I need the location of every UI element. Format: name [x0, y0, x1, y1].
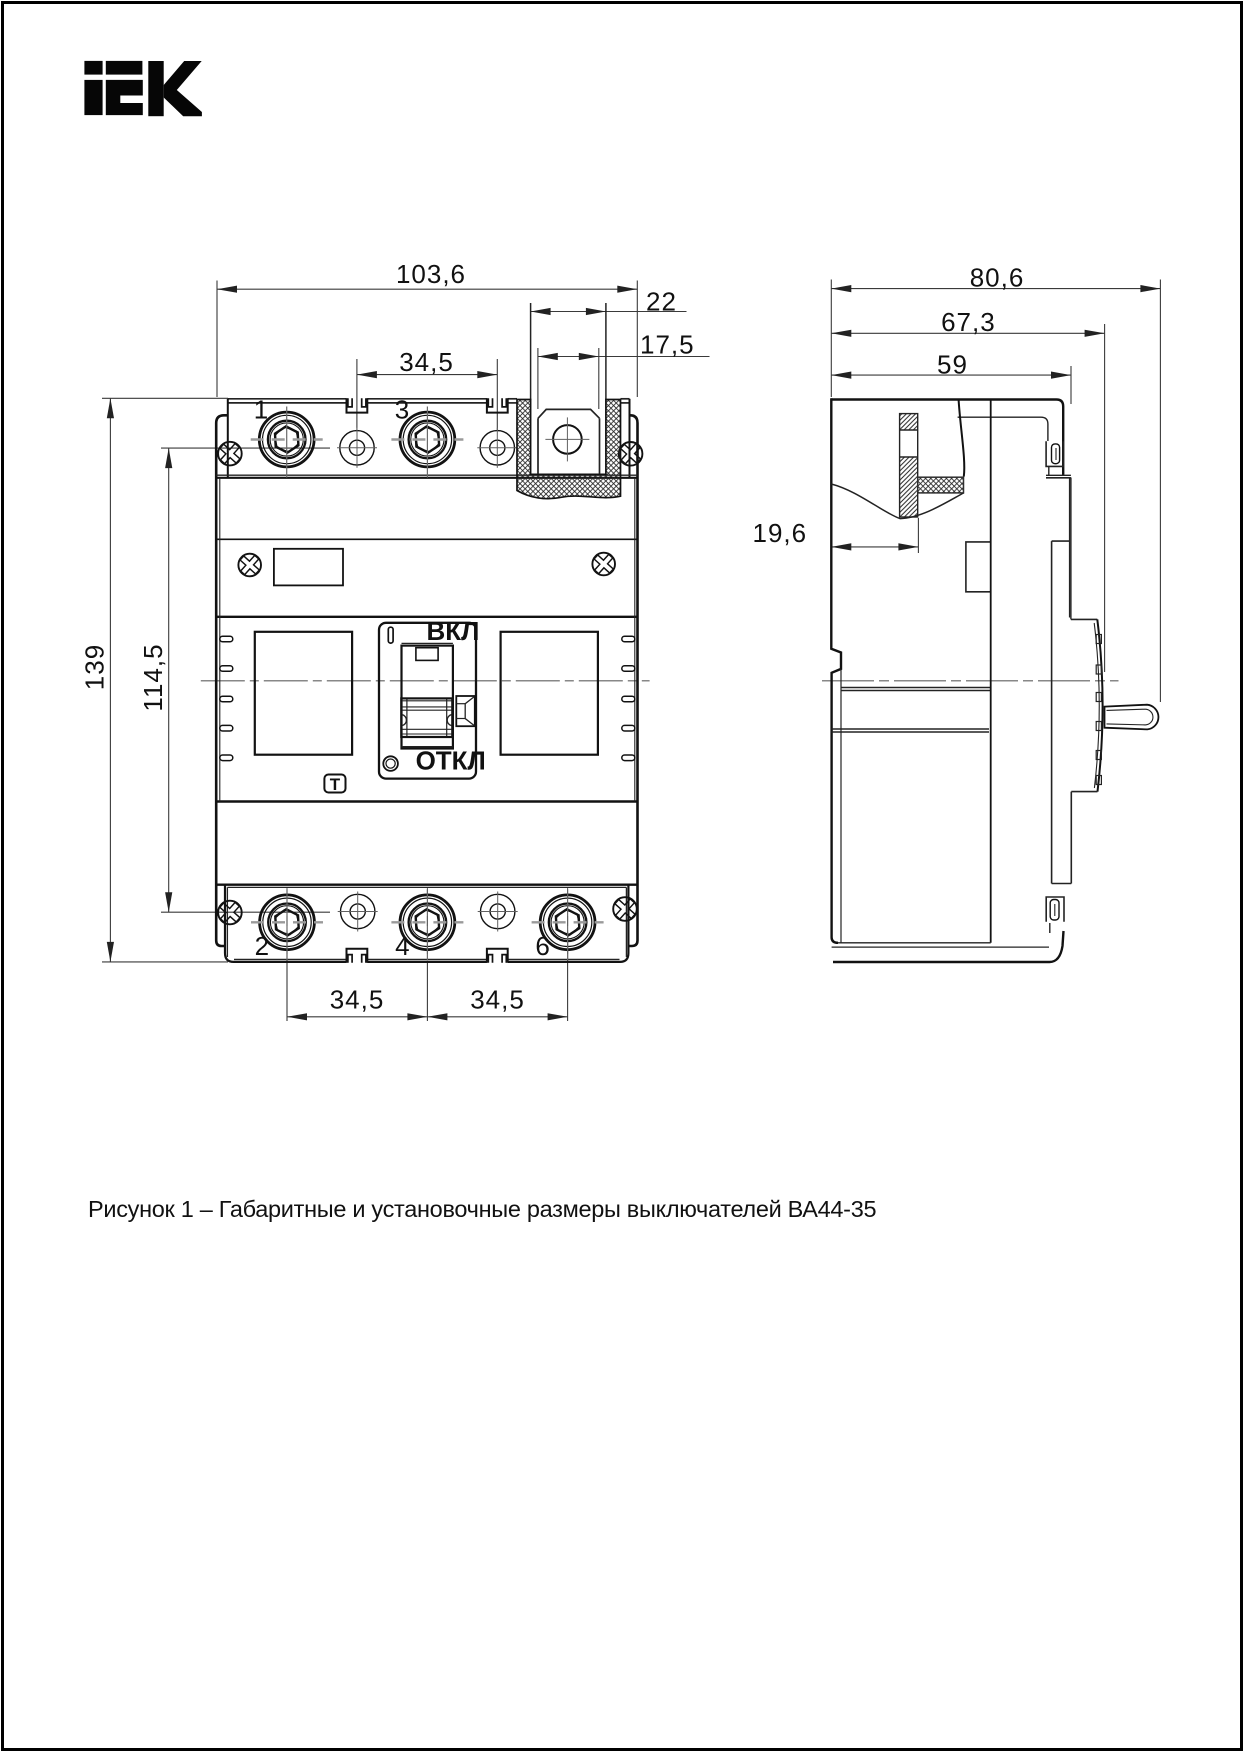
svg-text:6: 6: [535, 931, 549, 961]
svg-text:2: 2: [255, 931, 269, 961]
svg-text:ОТКЛ: ОТКЛ: [416, 745, 486, 775]
svg-text:ВКЛ: ВКЛ: [426, 616, 479, 646]
svg-text:67,3: 67,3: [941, 307, 996, 337]
svg-text:139: 139: [80, 644, 110, 690]
svg-text:103,6: 103,6: [396, 259, 466, 289]
svg-text:1: 1: [254, 395, 268, 425]
svg-text:19,6: 19,6: [752, 518, 807, 548]
svg-text:4: 4: [395, 931, 409, 961]
svg-text:22: 22: [646, 286, 677, 316]
svg-text:34,5: 34,5: [470, 985, 525, 1015]
svg-text:Рисунок 1 – Габаритные и устан: Рисунок 1 – Габаритные и установочные ра…: [88, 1196, 876, 1222]
svg-text:114,5: 114,5: [138, 643, 168, 711]
svg-text:34,5: 34,5: [399, 347, 454, 377]
svg-text:T: T: [330, 775, 341, 794]
svg-text:80,6: 80,6: [970, 263, 1025, 293]
svg-text:34,5: 34,5: [330, 985, 385, 1015]
svg-text:59: 59: [937, 350, 968, 380]
svg-text:17,5: 17,5: [640, 330, 695, 360]
svg-text:3: 3: [395, 395, 409, 425]
